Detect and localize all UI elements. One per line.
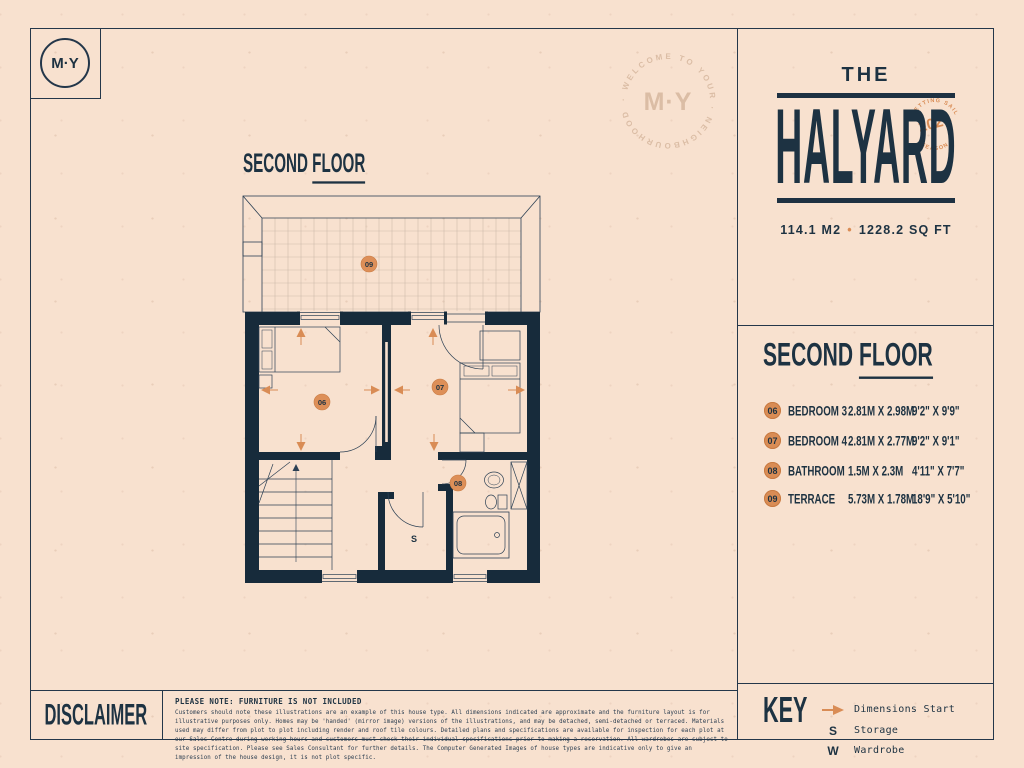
disclaimer-content: PLEASE NOTE: FURNITURE IS NOT INCLUDED C…	[163, 691, 737, 740]
bedroom3-badge: 06	[314, 394, 330, 410]
disclaimer-heading-box: DISCLAIMER	[30, 691, 163, 740]
dimension-arrow-icon	[261, 386, 278, 395]
bedroom4-wardrobe	[460, 433, 484, 452]
dimension-arrow-icon	[364, 386, 380, 395]
disclaimer-strip: DISCLAIMER PLEASE NOTE: FURNITURE IS NOT…	[30, 690, 737, 740]
room-imperial-dims: 18'9" X 5'10"	[912, 491, 970, 506]
dimensions-arrow-icon	[822, 705, 844, 715]
bathroom-fixtures	[453, 462, 527, 558]
room-metric-dims: 1.5M X 2.3M	[848, 463, 903, 478]
dimension-arrow-icon	[394, 386, 410, 395]
room-row: 06 BEDROOM 3 2.81M X 2.98M 9'2" X 9'9"	[738, 402, 995, 422]
room-number-badge: 06	[764, 402, 781, 419]
room-name: TERRACE	[788, 491, 835, 506]
partition-cavity-line	[385, 342, 388, 442]
terrace-inner-outline	[243, 196, 540, 312]
bedroom4-window	[408, 311, 447, 325]
key-label: Wardrobe	[854, 745, 905, 756]
room-number-badge: 09	[764, 490, 781, 507]
svg-text:09: 09	[365, 260, 373, 269]
brand-logo-box: M·Y	[30, 28, 101, 99]
development-name-block: HALYARD	[777, 93, 955, 203]
room-imperial-dims: 9'2" X 9'1"	[912, 433, 959, 448]
svg-text:06: 06	[318, 398, 326, 407]
area-separator: •	[841, 223, 859, 237]
title-prefix: THE	[738, 64, 994, 87]
staircase	[259, 460, 332, 570]
floorplan-page: M·Y · WELCOME TO YOUR · NEIGHBOURHOOD M·…	[0, 0, 1024, 768]
bathroom-bottom-window	[450, 570, 490, 583]
brand-logo-icon: M·Y	[40, 38, 90, 88]
rooms-heading-word1: SECOND	[763, 337, 853, 373]
terrace-area	[243, 196, 540, 312]
room-row: 08 BATHROOM 1.5M X 2.3M 4'11" X 7'7"	[738, 462, 995, 482]
outer-walls	[245, 312, 540, 583]
room-name: BATHROOM	[788, 463, 845, 478]
bedroom4-dresser	[480, 331, 520, 360]
key-symbol: W	[822, 744, 844, 758]
dimension-arrow-icon	[297, 328, 306, 345]
room-metric-dims: 5.73M X 1.78M	[848, 491, 914, 506]
bathroom-top-wall	[438, 452, 527, 460]
neighbourhood-watermark-stamp: · WELCOME TO YOUR · NEIGHBOURHOOD M·Y	[600, 33, 736, 169]
svg-text:07: 07	[436, 383, 444, 392]
room-schedule-heading: SECOND FLOOR	[763, 340, 981, 371]
room-row: 07 BEDROOM 4 2.81M X 2.77M 9'2" X 9'1"	[738, 432, 995, 452]
key-heading: KEY	[763, 694, 825, 728]
interior-walls	[259, 325, 527, 570]
dimension-arrows	[261, 328, 525, 451]
disclaimer-body: Customers should note these illustration…	[175, 709, 729, 763]
disclaimer-heading: DISCLAIMER	[45, 698, 148, 733]
dimension-arrow-icon	[297, 434, 306, 451]
room-row: 09 TERRACE 5.73M X 1.78M 18'9" X 5'10"	[738, 490, 995, 510]
total-area: 114.1 M2•1228.2 SQ FT	[738, 223, 994, 237]
bedroom3-nightstand	[259, 375, 272, 388]
room-number-badge: 07	[764, 432, 781, 449]
bedroom3-window	[297, 311, 343, 325]
plan-heading-word1: SECOND	[243, 148, 308, 178]
area-metric: 114.1 M2	[780, 223, 841, 237]
watermark-center-text: M·Y	[644, 88, 693, 116]
plan-floor-heading: SECOND FLOOR	[243, 150, 428, 177]
disclaimer-note: PLEASE NOTE: FURNITURE IS NOT INCLUDED	[175, 697, 729, 706]
development-name: HALYARD	[775, 95, 956, 202]
windows	[297, 311, 490, 583]
bedroom4-bed	[460, 363, 520, 433]
key-section: KEY Dimensions Start S Storage W Wardrob…	[738, 684, 994, 768]
room-schedule-section: SECOND FLOOR 06 BEDROOM 3 2.81M X 2.98M …	[738, 326, 994, 684]
brand-logo-text: M·Y	[51, 55, 79, 72]
airing-cupboard	[511, 462, 527, 509]
key-label: Storage	[854, 725, 898, 736]
stair-winders	[259, 462, 290, 503]
title-section: THE SETTING SAIL SEASON 2024 HALYARD	[738, 64, 994, 326]
terrace-parapet-outline	[243, 196, 540, 312]
dimension-arrow-icon	[429, 328, 438, 345]
terrace-niche	[243, 242, 262, 256]
key-symbol: S	[822, 724, 844, 738]
storage-right-wall	[446, 484, 453, 570]
terrace-door-swing-arc	[439, 325, 483, 369]
storage-left-stub	[378, 492, 394, 499]
storage-left-wall	[378, 492, 385, 570]
terrace-badge: 09	[361, 256, 377, 272]
room-number-badge: 08	[764, 462, 781, 479]
bedroom3-bottom-wall	[259, 452, 340, 460]
key-label: Dimensions Start	[854, 704, 955, 715]
dimension-arrow-icon	[430, 434, 439, 451]
bedroom4-badge: 07	[432, 379, 448, 395]
room-metric-dims: 2.81M X 2.77M	[848, 433, 914, 448]
svg-text:08: 08	[454, 479, 462, 488]
terrace-deck-grid	[262, 218, 521, 312]
rooms-heading-word2: FLOOR	[859, 337, 933, 379]
sink	[485, 472, 504, 488]
plan-heading-word2: FLOOR	[312, 148, 365, 184]
room-imperial-dims: 9'2" X 9'9"	[912, 403, 959, 418]
partition-base-post	[375, 446, 391, 460]
room-imperial-dims: 4'11" X 7'7"	[912, 463, 964, 478]
room-name: BEDROOM 4	[788, 433, 847, 448]
area-imperial: 1228.2 SQ FT	[859, 223, 952, 237]
stair-direction-arrow	[293, 464, 300, 471]
bedroom3-door	[340, 416, 376, 452]
dimension-arrow-icon	[508, 386, 525, 395]
info-panel: THE SETTING SAIL SEASON 2024 HALYARD	[737, 28, 994, 740]
storage-label: S	[411, 534, 417, 544]
toilet	[486, 495, 508, 509]
room-metric-dims: 2.81M X 2.98M	[848, 403, 914, 418]
room-name: BEDROOM 3	[788, 403, 847, 418]
bathtub	[453, 512, 509, 558]
floorplan-drawing: 09 06 07 08 S	[235, 190, 555, 590]
bathroom-badge: 08	[450, 475, 466, 491]
hall-bottom-window	[319, 570, 360, 583]
